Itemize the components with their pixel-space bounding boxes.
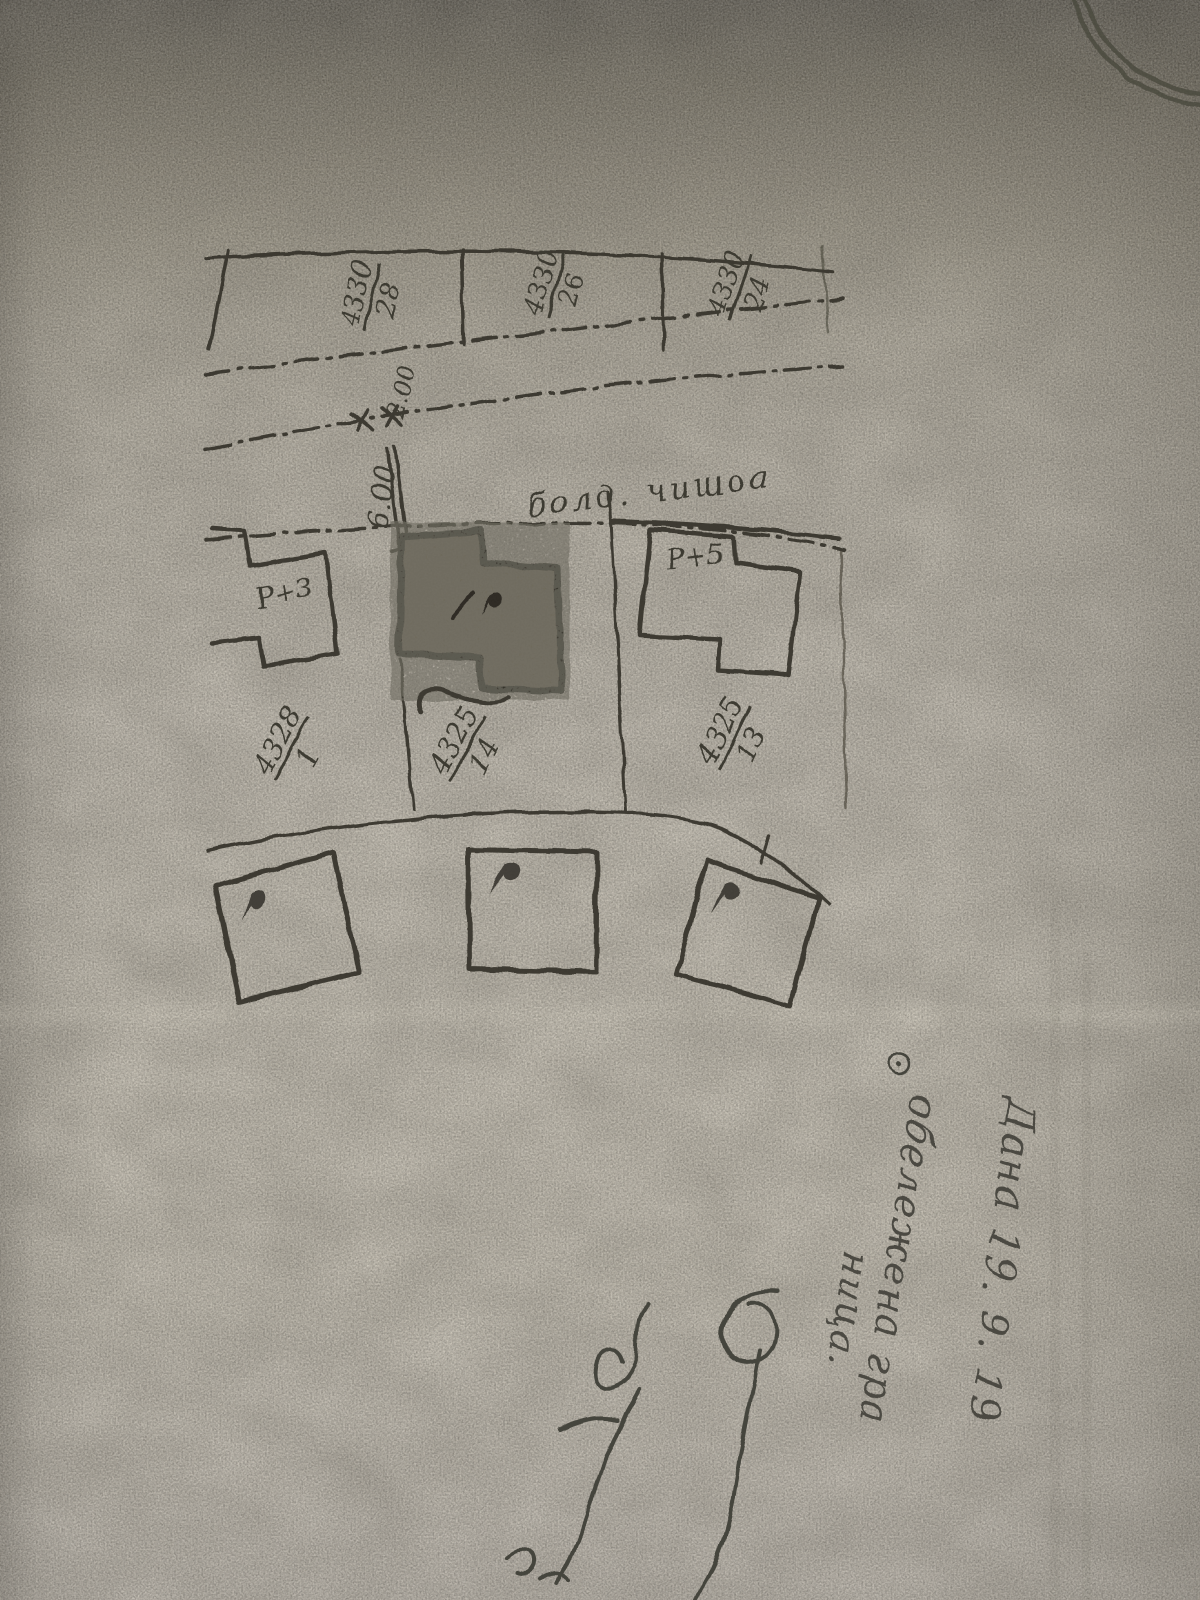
dimension-label-6m: 6.00	[361, 463, 402, 531]
paper-grain-light	[0, 0, 1200, 1600]
paper-background	[0, 0, 1200, 1600]
parcel-divider	[662, 253, 664, 349]
parcel-divider	[462, 250, 464, 344]
scanned-cadastral-document: болд. чишоа 4330 28 4330 26 4330 24 4328…	[0, 0, 1200, 1600]
mark-dot	[899, 1061, 904, 1066]
cadastral-sketch-scan: болд. чишоа 4330 28 4330 26 4330 24 4328…	[0, 0, 1200, 1600]
dimension-value: 6.00	[361, 463, 402, 531]
